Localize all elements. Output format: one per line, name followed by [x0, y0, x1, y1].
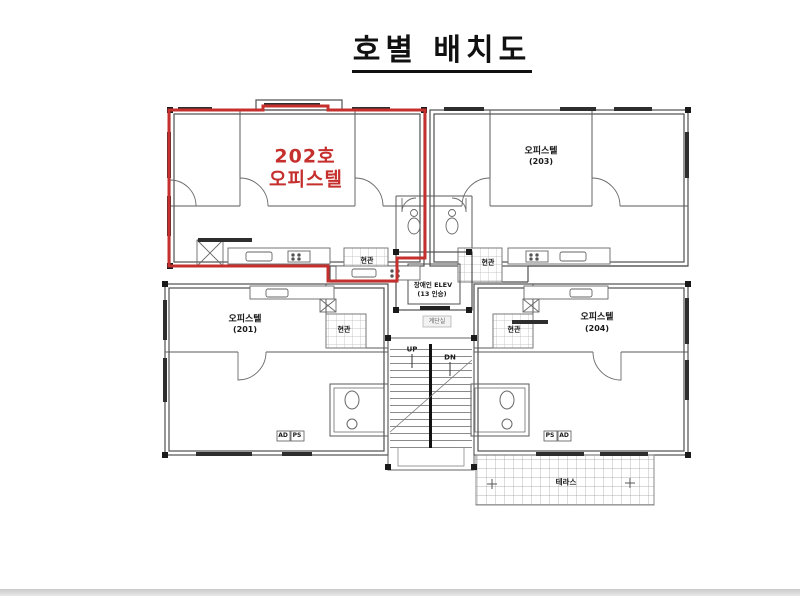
stairs [388, 316, 474, 470]
stairs-down-label: DN [444, 355, 456, 362]
shaft-ps-label-left: PS [293, 433, 302, 439]
terrace-label: 테라스 [556, 478, 577, 486]
unit-203-number: (203) [529, 158, 553, 166]
shaft-ad-label-left: AD [278, 433, 288, 439]
elevator-label-line1: 장애인 ELEV [414, 282, 452, 289]
stairwell-label: 계단실 [429, 319, 446, 325]
entrance-label-204: 현관 [508, 327, 521, 334]
stairs-up-label: UP [407, 347, 418, 354]
floor-plan-page: 호별 배치도 [0, 0, 800, 596]
shaft-ps-label-right: PS [546, 433, 555, 439]
bottom-edge-shadow [0, 589, 800, 596]
entrance-label-202: 현관 [361, 258, 374, 265]
floor-plan-drawing [0, 0, 800, 596]
elevator-label-line2: (13 인승) [417, 291, 446, 298]
entrance-label-201: 현관 [338, 327, 351, 334]
entrance-label-203: 현관 [482, 260, 495, 267]
unit-203-name: 오피스텔 [524, 148, 557, 157]
unit-204-number: (204) [585, 325, 609, 333]
unit-204-name: 오피스텔 [580, 314, 613, 323]
unit-201-name: 오피스텔 [228, 316, 261, 325]
wc-fixtures [408, 210, 458, 235]
highlighted-unit-type: 오피스텔 [269, 171, 343, 190]
shaft-ad-label-right: AD [559, 433, 569, 439]
highlighted-unit-number: 202호 [274, 148, 335, 167]
unit-201-number: (201) [233, 326, 257, 334]
